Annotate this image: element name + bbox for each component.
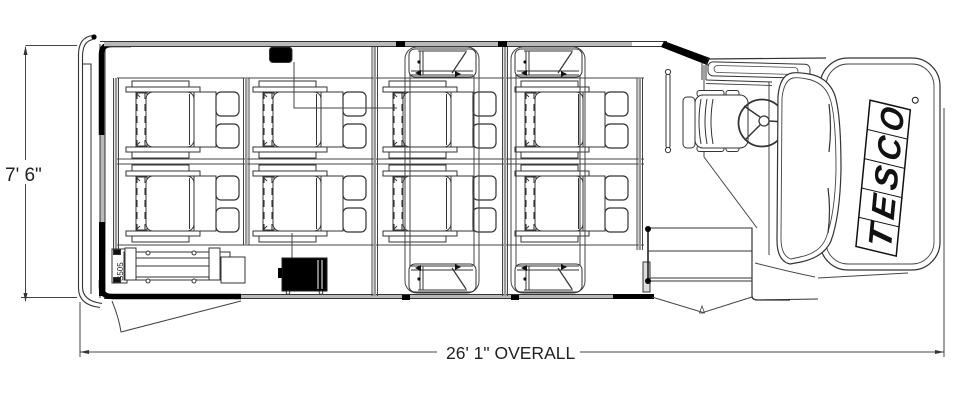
svg-text:7' 6": 7' 6" (5, 165, 42, 186)
svg-text:S505: S505 (116, 262, 125, 281)
svg-text:26' 1" OVERALL: 26' 1" OVERALL (446, 343, 575, 363)
